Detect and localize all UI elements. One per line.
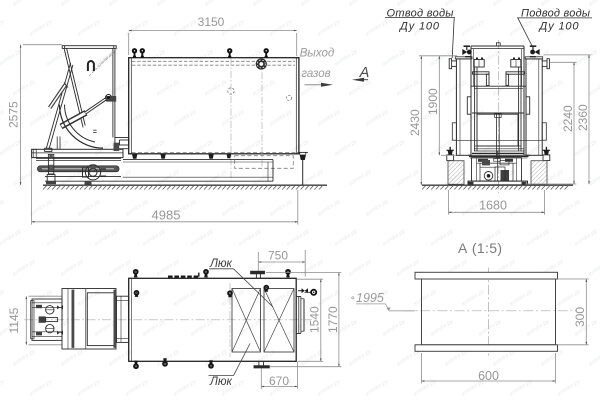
svg-text:котёл.ру: котёл.ру [77, 288, 103, 308]
svg-text:котёл.ру: котёл.ру [0, 198, 6, 218]
svg-text:750: 750 [268, 248, 288, 262]
svg-text:котёл.ру: котёл.ру [588, 258, 600, 278]
svg-text:котёл.ру: котёл.ру [300, 0, 326, 8]
svg-text:2575: 2575 [7, 101, 21, 128]
svg-text:котёл.ру: котёл.ру [365, 108, 391, 128]
svg-text:котёл.ру: котёл.ру [396, 78, 422, 98]
svg-text:котёл.ру: котёл.ру [60, 0, 86, 8]
svg-text:котёл.ру: котёл.ру [300, 258, 326, 278]
svg-text:котёл.ру: котёл.ру [12, 258, 38, 278]
svg-text:котёл.ру: котёл.ру [190, 318, 216, 338]
svg-text:котёл.ру: котёл.ру [252, 0, 278, 8]
svg-text:котёл.ру: котёл.ру [557, 198, 583, 218]
svg-text:котёл.ру: котёл.ру [204, 78, 230, 98]
svg-text:котёл.ру: котёл.ру [29, 18, 55, 38]
svg-text:котёл.ру: котёл.ру [221, 18, 247, 38]
svg-text:котёл.ру: котёл.ру [156, 258, 182, 278]
svg-text:котёл.ру: котёл.ру [365, 18, 391, 38]
svg-text:2430: 2430 [408, 109, 422, 136]
svg-text:1770: 1770 [326, 306, 340, 333]
svg-text:котёл.ру: котёл.ру [269, 198, 295, 218]
svg-text:котёл.ру: котёл.ру [77, 18, 103, 38]
svg-text:Люк: Люк [209, 258, 233, 270]
svg-text:котёл.ру: котёл.ру [204, 0, 230, 8]
svg-text:котёл.ру: котёл.ру [238, 318, 264, 338]
svg-text:котёл.ру: котёл.ру [413, 198, 439, 218]
svg-text:котёл.ру: котёл.ру [108, 0, 134, 8]
svg-text:котёл.ру: котёл.ру [430, 318, 456, 338]
svg-text:котёл.ру: котёл.ру [12, 168, 38, 188]
svg-text:котёл.ру: котёл.ру [478, 138, 504, 158]
svg-text:300: 300 [573, 307, 587, 327]
svg-text:600: 600 [478, 369, 499, 383]
svg-text:котёл.ру: котёл.ру [0, 18, 6, 38]
svg-text:котёл.ру: котёл.ру [540, 78, 566, 98]
svg-text:котёл.ру: котёл.ру [142, 318, 168, 338]
svg-text:котёл.ру: котёл.ру [382, 138, 408, 158]
svg-text:Ду 100: Ду 100 [398, 21, 440, 33]
svg-text:котёл.ру: котёл.ру [348, 0, 374, 8]
svg-text:котёл.ру: котёл.ру [108, 78, 134, 98]
svg-text:котёл.ру: котёл.ру [0, 288, 6, 308]
svg-text:1680: 1680 [479, 199, 507, 213]
svg-text:котёл.ру: котёл.ру [269, 18, 295, 38]
svg-text:котёл.ру: котёл.ру [300, 348, 326, 368]
svg-text:котёл.ру: котёл.ру [509, 18, 535, 38]
svg-text:котёл.ру: котёл.ру [156, 348, 182, 368]
svg-text:котёл.ру: котёл.ру [365, 198, 391, 218]
svg-text:котёл.ру: котёл.ру [382, 318, 408, 338]
svg-text:котёл.ру: котёл.ру [29, 108, 55, 128]
svg-text:котёл.ру: котёл.ру [221, 108, 247, 128]
svg-text:котёл.ру: котёл.ру [430, 228, 456, 248]
svg-text:котёл.ру: котёл.ру [0, 378, 6, 398]
svg-text:котёл.ру: котёл.ру [60, 348, 86, 368]
svg-text:котёл.ру: котёл.ру [557, 378, 583, 398]
svg-text:котёл.ру: котёл.ру [46, 228, 72, 248]
svg-text:3150: 3150 [198, 15, 225, 29]
svg-text:котёл.ру: котёл.ру [77, 378, 103, 398]
svg-text:котёл.ру: котёл.ру [29, 288, 55, 308]
svg-text:котёл.ру: котёл.ру [108, 348, 134, 368]
svg-text:котёл.ру: котёл.ру [461, 288, 487, 308]
svg-text:Ду 100: Ду 100 [538, 21, 580, 33]
svg-text:котёл.ру: котёл.ру [348, 348, 374, 368]
svg-text:котёл.ру: котёл.ру [0, 138, 23, 158]
svg-text:котёл.ру: котёл.ру [60, 258, 86, 278]
svg-text:котёл.ру: котёл.ру [77, 198, 103, 218]
svg-text:1995: 1995 [356, 291, 384, 305]
svg-text:котёл.ру: котёл.ру [238, 138, 264, 158]
svg-text:котёл.ру: котёл.ру [382, 48, 408, 68]
svg-text:котёл.ру: котёл.ру [108, 258, 134, 278]
svg-text:котёл.ру: котёл.ру [269, 108, 295, 128]
svg-text:котёл.ру: котёл.ру [46, 318, 72, 338]
svg-text:котёл.ру: котёл.ру [348, 168, 374, 188]
svg-text:1145: 1145 [7, 307, 21, 333]
svg-text:котёл.ру: котёл.ру [204, 348, 230, 368]
svg-text:котёл.ру: котёл.ру [125, 198, 151, 218]
svg-text:котёл.ру: котёл.ру [557, 288, 583, 308]
svg-text:котёл.ру: котёл.ру [492, 78, 518, 98]
svg-text:котёл.ру: котёл.ру [0, 48, 23, 68]
svg-text:котёл.ру: котёл.ру [173, 108, 199, 128]
svg-text:1540: 1540 [308, 306, 322, 333]
svg-text:котёл.ру: котёл.ру [588, 168, 600, 188]
svg-text:котёл.ру: котёл.ру [12, 0, 38, 8]
svg-text:4985: 4985 [152, 208, 181, 223]
svg-text:котёл.ру: котёл.ру [142, 228, 168, 248]
svg-text:котёл.ру: котёл.ру [526, 318, 552, 338]
svg-text:котёл.ру: котёл.ру [574, 138, 600, 158]
svg-text:Люк: Люк [209, 376, 233, 388]
svg-text:котёл.ру: котёл.ру [173, 18, 199, 38]
svg-text:1900: 1900 [426, 88, 440, 115]
svg-text:котёл.ру: котёл.ру [317, 18, 343, 38]
svg-text:котёл.ру: котёл.ру [125, 378, 151, 398]
svg-text:котёл.ру: котёл.ру [526, 228, 552, 248]
svg-text:котёл.ру: котёл.ру [413, 288, 439, 308]
svg-text:котёл.ру: котёл.ру [382, 228, 408, 248]
svg-text:котёл.ру: котёл.ру [461, 18, 487, 38]
svg-text:котёл.ру: котёл.ру [348, 258, 374, 278]
svg-text:котёл.ру: котёл.ру [286, 228, 312, 248]
svg-text:670: 670 [269, 374, 289, 388]
svg-text:котёл.ру: котёл.ру [509, 198, 535, 218]
svg-text:котёл.ру: котёл.ру [29, 198, 55, 218]
svg-text:котёл.ру: котёл.ру [574, 228, 600, 248]
svg-text:котёл.ру: котёл.ру [492, 0, 518, 8]
svg-text:котёл.ру: котёл.ру [509, 108, 535, 128]
svg-text:котёл.ру: котёл.ру [94, 228, 120, 248]
svg-text:котёл.ру: котёл.ру [0, 228, 23, 248]
svg-text:котёл.ру: котёл.ру [0, 108, 6, 128]
svg-text:котёл.ру: котёл.ру [317, 378, 343, 398]
svg-text:котёл.ру: котёл.ру [12, 78, 38, 98]
svg-text:котёл.ру: котёл.ру [574, 48, 600, 68]
svg-text:котёл.ру: котёл.ру [334, 48, 360, 68]
svg-text:котёл.ру: котёл.ру [461, 108, 487, 128]
svg-text:котёл.ру: котёл.ру [365, 378, 391, 398]
svg-text:котёл.ру: котёл.ру [588, 348, 600, 368]
svg-text:котёл.ру: котёл.ру [588, 78, 600, 98]
svg-text:газов: газов [301, 68, 330, 80]
svg-text:котёл.ру: котёл.ру [317, 198, 343, 218]
svg-text:котёл.ру: котёл.ру [509, 288, 535, 308]
svg-text:котёл.ру: котёл.ру [334, 138, 360, 158]
svg-text:2360: 2360 [576, 104, 590, 131]
svg-text:котёл.ру: котёл.ру [478, 318, 504, 338]
svg-text:котёл.ру: котёл.ру [156, 0, 182, 8]
svg-text:котёл.ру: котёл.ру [12, 348, 38, 368]
svg-text:Выход: Выход [300, 48, 335, 60]
svg-text:котёл.ру: котёл.ру [396, 168, 422, 188]
svg-text:котёл.ру: котёл.ру [173, 288, 199, 308]
svg-text:котёл.ру: котёл.ру [238, 228, 264, 248]
svg-text:2240: 2240 [561, 105, 575, 132]
svg-text:котёл.ру: котёл.ру [29, 378, 55, 398]
svg-text:котёл.ру: котёл.ру [317, 108, 343, 128]
svg-text:котёл.ру: котёл.ру [300, 78, 326, 98]
svg-text:котёл.ру: котёл.ру [173, 378, 199, 398]
svg-text:котёл.ру: котёл.ру [156, 78, 182, 98]
svg-text:котёл.ру: котёл.ру [269, 288, 295, 308]
svg-text:котёл.ру: котёл.ру [252, 78, 278, 98]
svg-text:котёл.ру: котёл.ру [221, 288, 247, 308]
svg-text:котёл.ру: котёл.ру [221, 198, 247, 218]
svg-text:котёл.ру: котёл.ру [190, 228, 216, 248]
svg-text:А (1:5): А (1:5) [458, 240, 502, 256]
svg-text:котёл.ру: котёл.ру [334, 228, 360, 248]
